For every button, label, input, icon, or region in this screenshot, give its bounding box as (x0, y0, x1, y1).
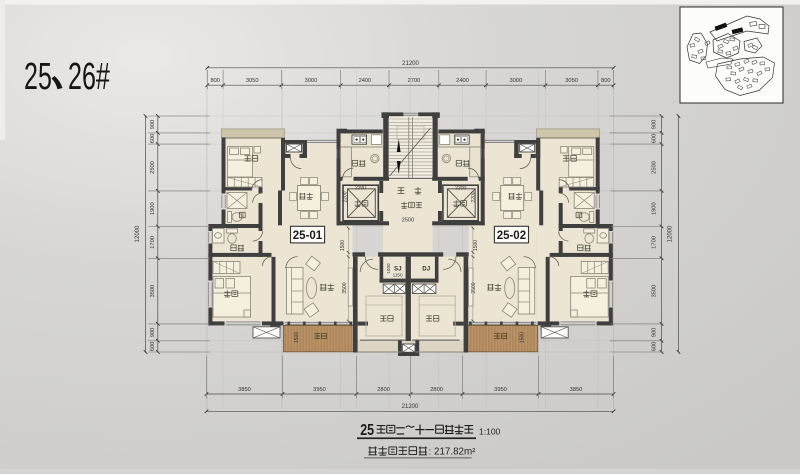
svg-text:217.82m²: 217.82m² (434, 446, 476, 457)
svg-text:3950: 3950 (494, 387, 507, 393)
svg-text:2500: 2500 (402, 218, 414, 224)
svg-text:2500: 2500 (652, 161, 658, 174)
svg-text:12000: 12000 (668, 225, 674, 242)
svg-text:3850: 3850 (570, 387, 583, 393)
svg-text:1700: 1700 (652, 236, 658, 249)
svg-text:2800: 2800 (430, 387, 443, 393)
svg-text:2400: 2400 (359, 78, 372, 84)
svg-text:2200: 2200 (342, 191, 348, 202)
svg-text:1500: 1500 (519, 332, 525, 343)
svg-text:600: 600 (150, 342, 156, 352)
svg-text:3500: 3500 (471, 282, 477, 293)
svg-text:900: 900 (150, 328, 156, 338)
svg-text:3500: 3500 (652, 285, 658, 298)
svg-text:3850: 3850 (238, 387, 251, 393)
svg-text:1900: 1900 (150, 202, 156, 215)
svg-text:12000: 12000 (135, 225, 141, 242)
svg-text:3500: 3500 (150, 285, 156, 298)
svg-text:1500: 1500 (294, 332, 300, 343)
svg-text:1500: 1500 (473, 240, 479, 251)
svg-text:900: 900 (652, 328, 658, 338)
svg-text:3000: 3000 (509, 78, 522, 84)
svg-text:SJ: SJ (394, 265, 402, 272)
svg-text:600: 600 (150, 134, 156, 144)
svg-text:3000: 3000 (305, 78, 318, 84)
svg-text:25: 25 (360, 422, 374, 440)
svg-text:800: 800 (601, 78, 611, 84)
svg-text:1000: 1000 (386, 263, 391, 274)
svg-text:3050: 3050 (246, 78, 259, 84)
svg-text:900: 900 (150, 120, 156, 130)
svg-text:900: 900 (652, 120, 658, 130)
svg-text:21200: 21200 (402, 404, 419, 410)
svg-text:25-02: 25-02 (497, 230, 526, 242)
svg-text:25-01: 25-01 (293, 230, 323, 242)
svg-text:800: 800 (210, 78, 220, 84)
svg-text:1150: 1150 (393, 272, 403, 277)
svg-text:600: 600 (652, 134, 658, 144)
svg-text:1900: 1900 (652, 202, 658, 215)
svg-text:2200: 2200 (471, 191, 477, 202)
svg-text:1700: 1700 (150, 236, 156, 249)
svg-text:600: 600 (652, 342, 658, 352)
svg-text:2200: 2200 (355, 186, 366, 192)
svg-text:3050: 3050 (565, 78, 578, 84)
svg-text:25: 25 (24, 55, 52, 97)
svg-text:1:100: 1:100 (479, 427, 501, 437)
svg-text::: : (429, 446, 432, 457)
svg-text:21200: 21200 (402, 61, 419, 67)
svg-text:DJ: DJ (422, 266, 430, 273)
svg-text:3500: 3500 (342, 282, 348, 293)
svg-text:2200: 2200 (455, 186, 466, 192)
svg-text:2700: 2700 (408, 78, 421, 84)
svg-text:2800: 2800 (377, 387, 390, 393)
svg-text:3950: 3950 (313, 387, 326, 393)
svg-text:26#: 26# (68, 55, 110, 97)
svg-text:1500: 1500 (340, 240, 346, 251)
svg-text:2500: 2500 (150, 161, 156, 174)
svg-text:2400: 2400 (456, 78, 469, 84)
